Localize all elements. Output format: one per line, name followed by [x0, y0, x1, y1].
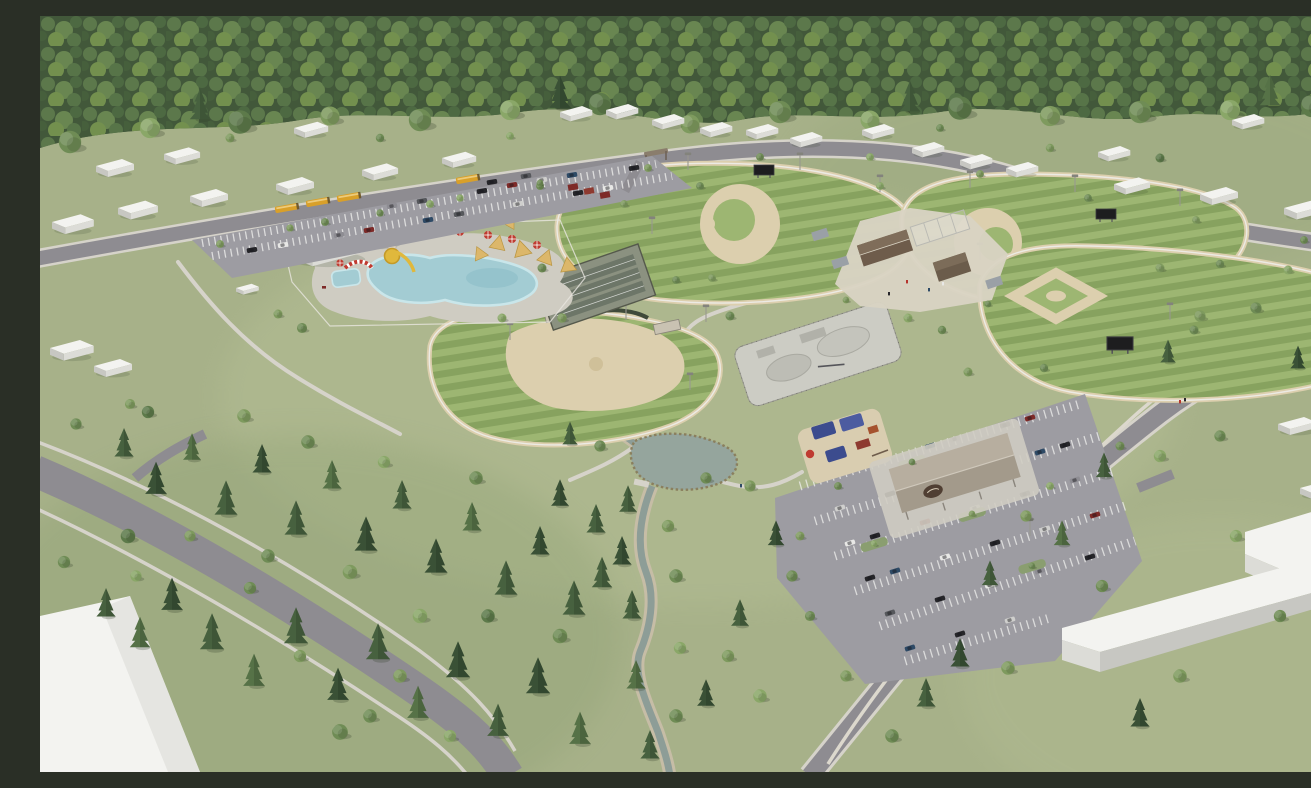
- ballfield-east: [980, 246, 1311, 401]
- merry-go-round: [806, 450, 814, 458]
- pitchers-mound: [701, 217, 715, 231]
- park-aerial-rendering: Daytime aerial 3D rendering of a communi…: [40, 16, 1311, 772]
- pitchers-circle: [589, 357, 603, 371]
- maintenance-cart: [322, 286, 326, 289]
- pool-deep-end: [466, 268, 518, 288]
- ballfield-southwest: [429, 307, 720, 445]
- infield-grass: [713, 199, 755, 241]
- kiddie-pool: [331, 268, 361, 288]
- rendering-canvas: [40, 16, 1311, 772]
